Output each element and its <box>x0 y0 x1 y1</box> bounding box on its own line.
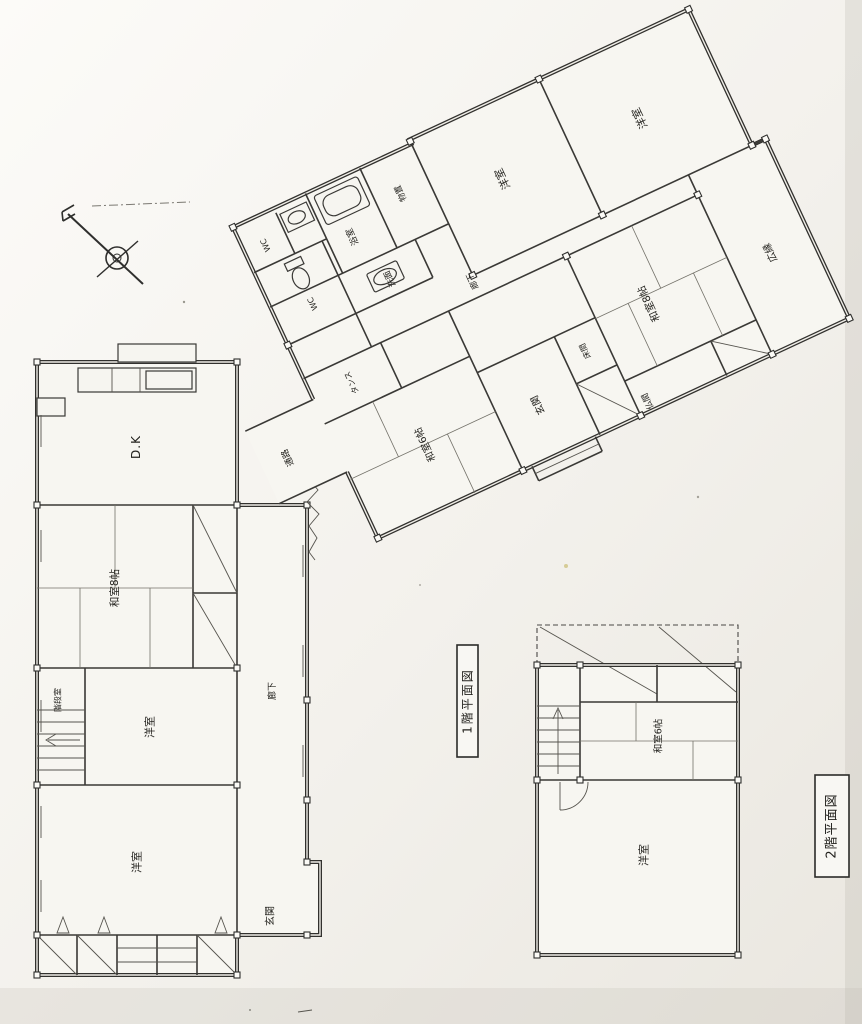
caption-floor1-text: 1階平面図 <box>460 668 475 734</box>
room-label-stair-room: 階段室 <box>53 688 63 712</box>
caption-floor2-text: 2階平面図 <box>825 793 840 858</box>
scan-edge-shadow-bottom <box>0 988 862 1024</box>
room-label-yoshitsu-mid: 洋室 <box>143 716 157 738</box>
room-label-genkan-left: 玄関 <box>264 906 277 926</box>
room-label-washitsu6-2f: 和室6帖 <box>653 718 665 753</box>
room-label-washitsu8-left: 和室8帖 <box>108 568 121 607</box>
scanned-floorplan-page: D.K 和室8帖 階段室 洋室 洋室 廊下 玄関 <box>0 0 862 1024</box>
room-label-dk: D.K <box>129 435 143 459</box>
floor2-plan: 和室6帖 洋室 <box>534 625 741 958</box>
caption-floor2: 2階平面図 <box>815 775 849 877</box>
floorplan-drawing: D.K 和室8帖 階段室 洋室 洋室 廊下 玄関 <box>0 0 862 1024</box>
room-label-yoshitsu-bottom: 洋室 <box>130 851 144 873</box>
caption-floor1: 1階平面図 <box>457 645 478 757</box>
room-label-rouka-left: 廊下 <box>266 682 278 700</box>
room-label-yoshitsu-2f: 洋室 <box>637 844 651 866</box>
